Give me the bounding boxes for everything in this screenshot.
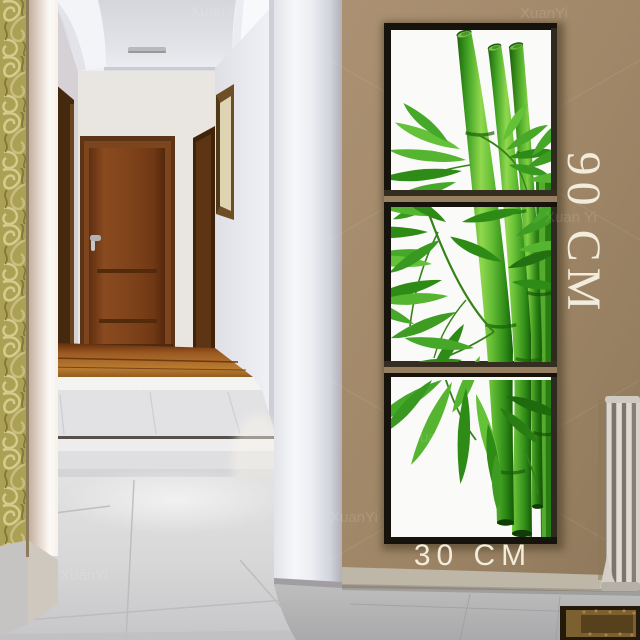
svg-text:XuanYi: XuanYi	[330, 509, 378, 526]
svg-text:90 CM: 90 CM	[557, 152, 610, 317]
svg-text:XuanYi: XuanYi	[190, 3, 238, 20]
svg-text:XuanYi: XuanYi	[100, 377, 148, 394]
svg-text:XuanYi: XuanYi	[520, 5, 568, 22]
svg-text:XuanYi: XuanYi	[60, 567, 108, 584]
svg-text:30 CM: 30 CM	[414, 539, 532, 572]
svg-text:Xuan Yi: Xuan Yi	[545, 209, 597, 226]
svg-text:XuanYi: XuanYi	[410, 429, 458, 446]
